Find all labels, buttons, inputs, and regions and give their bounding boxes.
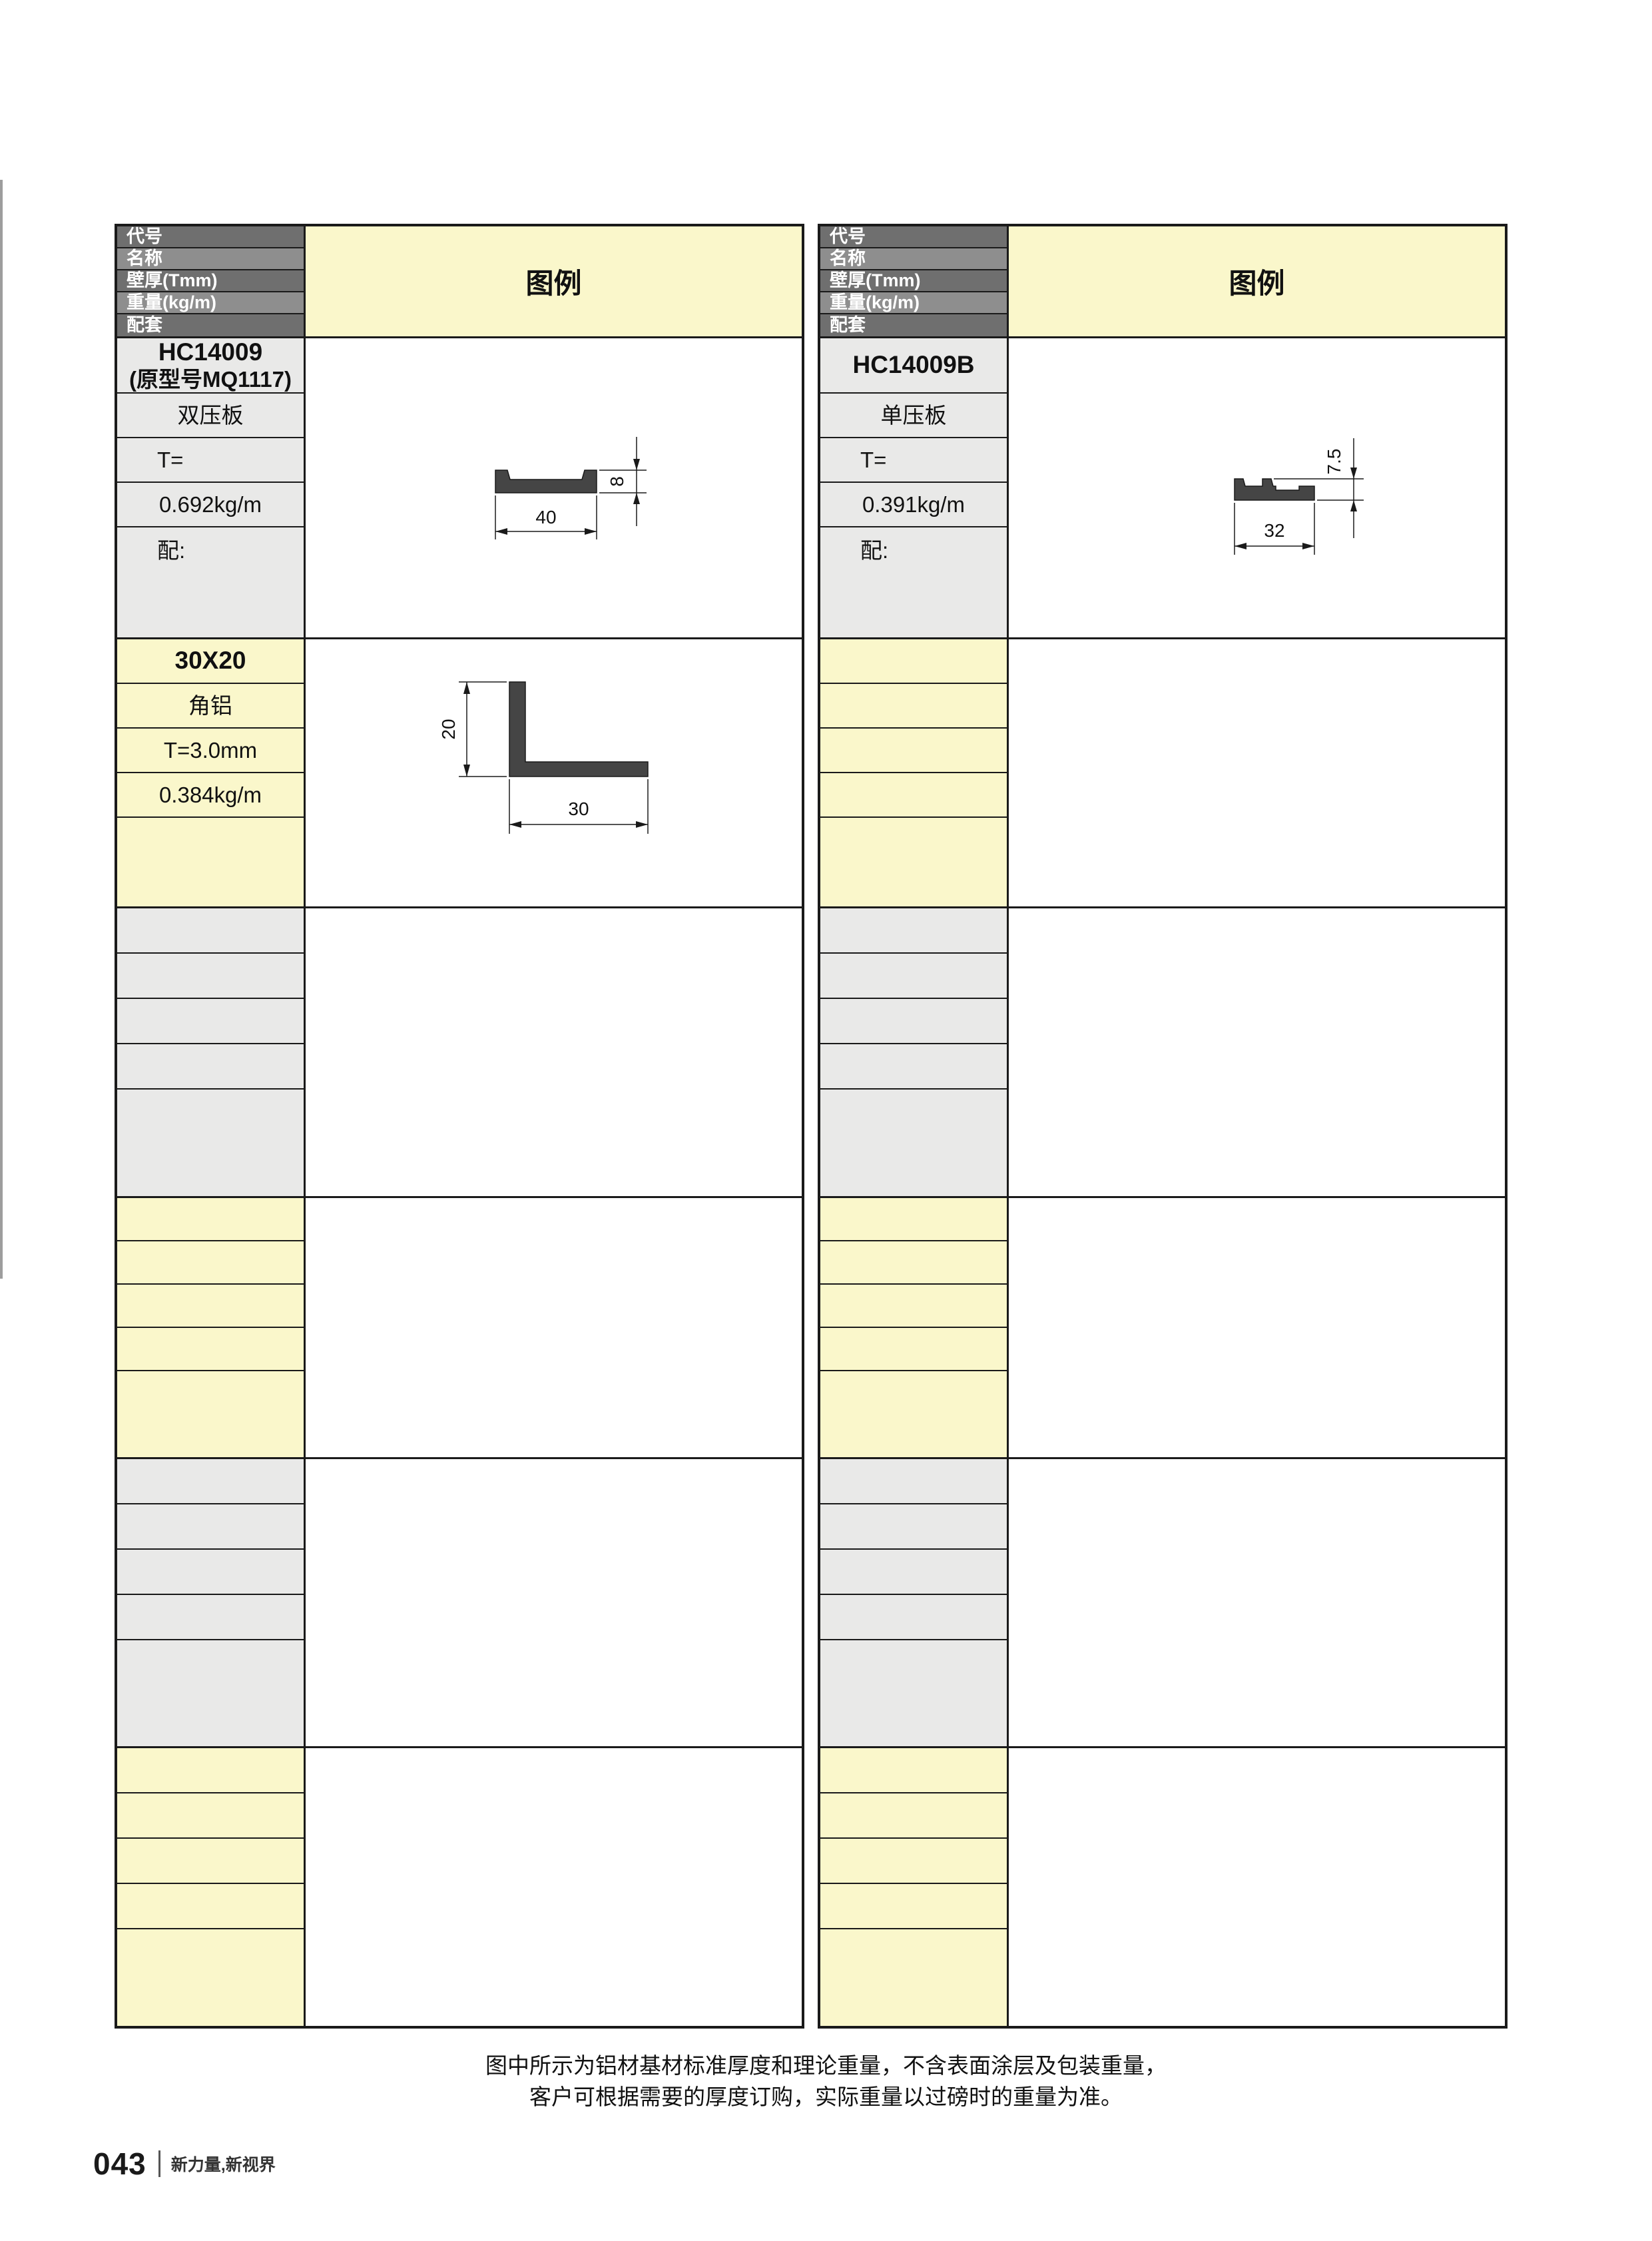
empty-diagram	[306, 1459, 802, 1746]
hc14009-diagram: 40 8	[306, 338, 802, 637]
page-edge-mark	[0, 180, 3, 1279]
header-accessory-label: 配套	[820, 314, 1007, 336]
product-name: 角铝	[117, 684, 304, 729]
header-thickness-label: 壁厚(Tmm)	[117, 270, 304, 292]
legend-header: 图例	[306, 226, 802, 336]
hc14009b-labels: HC14009B 单压板 T= 0.391kg/m 配:	[820, 338, 1009, 637]
angle-profile-drawing: 20 30	[306, 639, 802, 906]
empty-diagram	[306, 1198, 802, 1457]
right-product-table: 代号 名称 壁厚(Tmm) 重量(kg/m) 配套 图例 HC14009B 单压…	[818, 224, 1508, 2029]
header-code-label: 代号	[117, 226, 304, 248]
header-weight-label: 重量(kg/m)	[117, 292, 304, 314]
page-number: 043	[93, 2146, 146, 2182]
left-header-labels: 代号 名称 壁厚(Tmm) 重量(kg/m) 配套	[117, 226, 306, 336]
hc14009-labels: HC14009 (原型号MQ1117) 双压板 T= 0.692kg/m 配:	[117, 338, 306, 637]
legend-header: 图例	[1009, 226, 1505, 336]
empty-block	[820, 637, 1505, 906]
product-code-line2: (原型号MQ1117)	[129, 367, 292, 392]
product-thickness: T=	[820, 438, 1007, 483]
empty-diagram	[1009, 1748, 1505, 2026]
footnote: 图中所示为铝材基材标准厚度和理论重量，不含表面涂层及包装重量， 客户可根据需要的…	[0, 2050, 1652, 2112]
empty-block	[117, 1457, 802, 1746]
width-dimension-label: 30	[568, 799, 589, 819]
page-footer: 043 新力量,新视界	[93, 2146, 276, 2182]
product-thickness: T=3.0mm	[117, 729, 304, 773]
header-accessory-label: 配套	[117, 314, 304, 336]
product-accessory: 配:	[117, 527, 304, 637]
header-name-label: 名称	[820, 248, 1007, 270]
product-weight: 0.384kg/m	[117, 773, 304, 818]
empty-diagram	[306, 908, 802, 1196]
product-code-line1: HC14009	[158, 338, 262, 367]
empty-block	[820, 1196, 1505, 1457]
product-code: 30X20	[117, 639, 304, 684]
left-table-header: 代号 名称 壁厚(Tmm) 重量(kg/m) 配套 图例	[117, 226, 802, 336]
empty-diagram	[1009, 1459, 1505, 1746]
single-pressure-plate-drawing: 7.5 32	[1009, 338, 1505, 637]
width-dimension-label: 40	[535, 507, 556, 527]
height-dimension-label: 8	[607, 476, 627, 487]
height-dimension-label: 20	[438, 719, 459, 739]
height-dimension-label: 7.5	[1324, 449, 1344, 475]
right-header-labels: 代号 名称 壁厚(Tmm) 重量(kg/m) 配套	[820, 226, 1009, 336]
empty-diagram	[1009, 908, 1505, 1196]
product-name: 双压板	[117, 394, 304, 438]
hc14009b-diagram: 7.5 32	[1009, 338, 1505, 637]
empty-block	[820, 1457, 1505, 1746]
footnote-line2: 客户可根据需要的厚度订购，实际重量以过磅时的重量为准。	[0, 2081, 1652, 2112]
double-pressure-plate-drawing: 40 8	[306, 338, 802, 637]
header-weight-label: 重量(kg/m)	[820, 292, 1007, 314]
header-name-label: 名称	[117, 248, 304, 270]
profile-cross-section	[495, 470, 597, 493]
header-thickness-label: 壁厚(Tmm)	[820, 270, 1007, 292]
width-dimension-label: 32	[1264, 520, 1284, 541]
profile-cross-section	[1235, 479, 1314, 500]
profile-cross-section	[509, 682, 648, 777]
empty-diagram	[1009, 1198, 1505, 1457]
empty-block	[117, 906, 802, 1196]
product-code: HC14009 (原型号MQ1117)	[117, 338, 304, 394]
product-accessory: 配:	[820, 527, 1007, 637]
product-thickness: T=	[117, 438, 304, 483]
footer-slogan: 新力量,新视界	[171, 2152, 276, 2176]
angle-diagram: 20 30	[306, 639, 802, 906]
empty-diagram	[1009, 639, 1505, 906]
empty-block	[820, 1746, 1505, 2026]
product-block-hc14009: HC14009 (原型号MQ1117) 双压板 T= 0.692kg/m 配: …	[117, 336, 802, 637]
product-accessory	[117, 818, 304, 906]
product-code: HC14009B	[820, 338, 1007, 394]
header-code-label: 代号	[820, 226, 1007, 248]
empty-block	[117, 1196, 802, 1457]
empty-diagram	[306, 1748, 802, 2026]
product-weight: 0.692kg/m	[117, 483, 304, 527]
product-block-30x20: 30X20 角铝 T=3.0mm 0.384kg/m 20 30	[117, 637, 802, 906]
product-block-hc14009b: HC14009B 单压板 T= 0.391kg/m 配: 7.5 32	[820, 336, 1505, 637]
footer-divider	[158, 2150, 160, 2177]
empty-block	[117, 1746, 802, 2026]
angle-labels: 30X20 角铝 T=3.0mm 0.384kg/m	[117, 639, 306, 906]
product-name: 单压板	[820, 394, 1007, 438]
product-weight: 0.391kg/m	[820, 483, 1007, 527]
right-table-header: 代号 名称 壁厚(Tmm) 重量(kg/m) 配套 图例	[820, 226, 1505, 336]
footnote-line1: 图中所示为铝材基材标准厚度和理论重量，不含表面涂层及包装重量，	[0, 2050, 1652, 2081]
empty-block	[820, 906, 1505, 1196]
left-product-table: 代号 名称 壁厚(Tmm) 重量(kg/m) 配套 图例 HC14009 (原型…	[115, 224, 804, 2029]
